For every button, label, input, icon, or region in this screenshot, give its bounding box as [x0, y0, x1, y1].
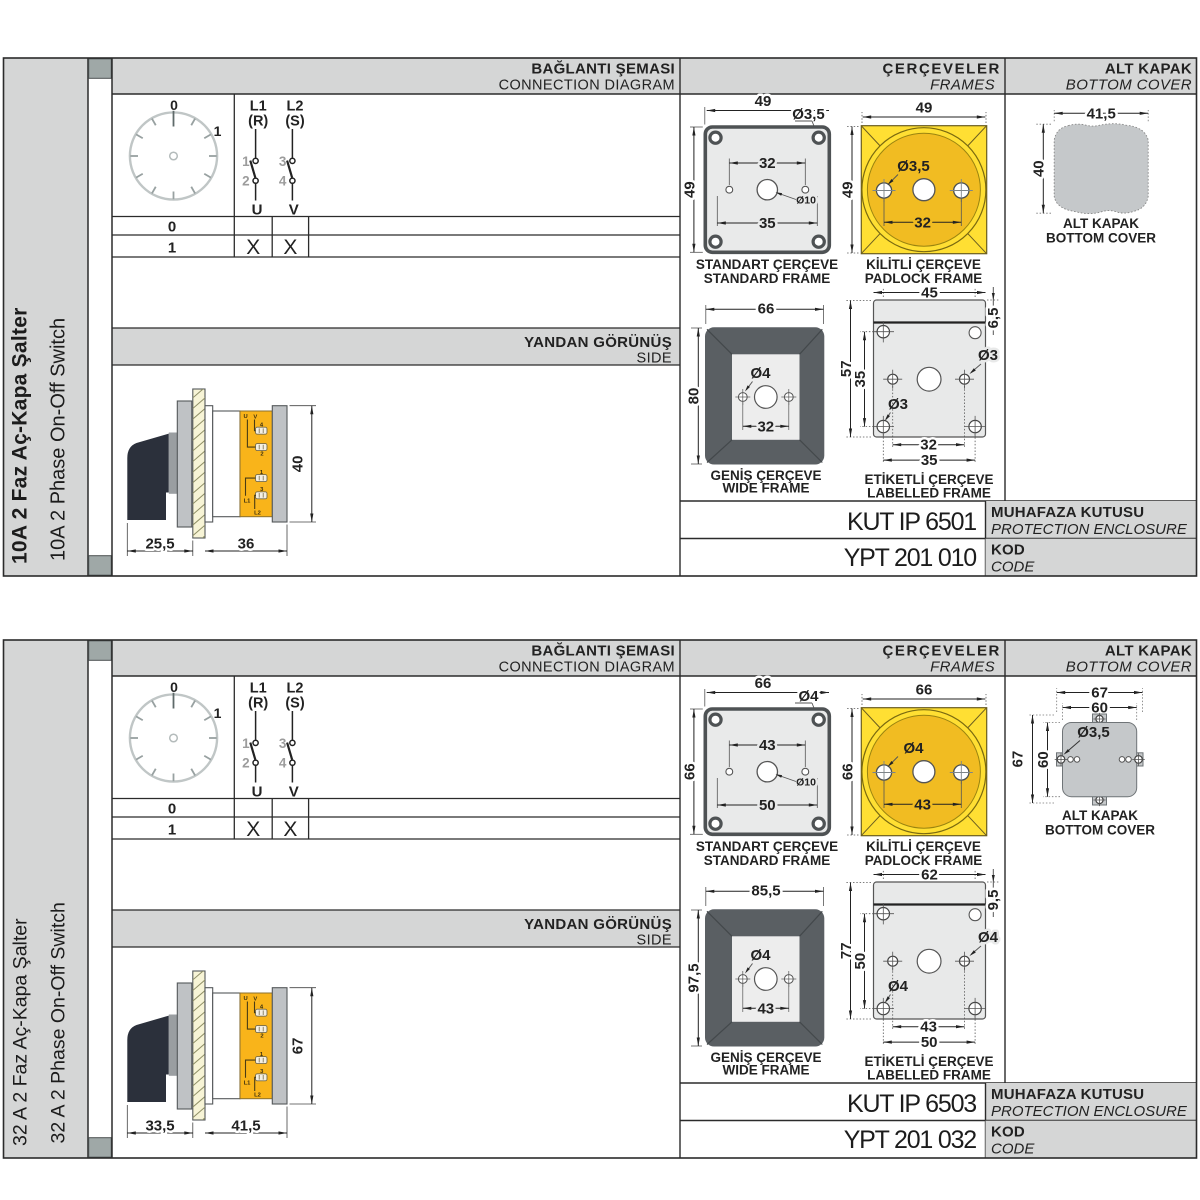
- svg-text:L2: L2: [254, 511, 261, 517]
- svg-text:66: 66: [755, 675, 772, 692]
- svg-text:YANDAN GÖRÜNÜŞ: YANDAN GÖRÜNÜŞ: [524, 334, 672, 351]
- svg-text:32: 32: [757, 418, 774, 435]
- svg-text:Ø3,5: Ø3,5: [1077, 724, 1110, 741]
- svg-text:KİLİTLİ ÇERÇEVE: KİLİTLİ ÇERÇEVE: [866, 257, 981, 272]
- svg-text:0: 0: [170, 679, 178, 695]
- svg-text:1: 1: [214, 123, 222, 139]
- svg-text:Ø4: Ø4: [978, 929, 999, 946]
- svg-text:YPT 201 032: YPT 201 032: [844, 1126, 977, 1154]
- svg-text:66: 66: [916, 682, 933, 699]
- svg-text:SIDE: SIDE: [637, 351, 672, 367]
- svg-text:35: 35: [759, 215, 776, 232]
- svg-text:40: 40: [290, 456, 307, 473]
- svg-text:1: 1: [242, 154, 250, 169]
- svg-text:32: 32: [914, 214, 931, 231]
- svg-text:L1: L1: [250, 681, 267, 697]
- svg-text:9,5: 9,5: [985, 890, 1002, 911]
- svg-text:0: 0: [168, 801, 176, 818]
- svg-text:L1: L1: [244, 499, 252, 505]
- svg-text:32: 32: [759, 155, 776, 172]
- svg-text:35: 35: [852, 371, 869, 388]
- svg-text:Ø3,5: Ø3,5: [897, 158, 930, 175]
- svg-text:STANDART ÇERÇEVE: STANDART ÇERÇEVE: [696, 839, 838, 854]
- svg-text:85,5: 85,5: [751, 883, 780, 900]
- svg-text:4: 4: [279, 755, 287, 770]
- svg-text:L1: L1: [250, 99, 267, 115]
- svg-text:MUHAFAZA KUTUSU: MUHAFAZA KUTUSU: [991, 1086, 1144, 1103]
- svg-text:50: 50: [921, 1034, 938, 1051]
- svg-text:66: 66: [758, 301, 775, 318]
- svg-text:STANDARD FRAME: STANDARD FRAME: [704, 853, 831, 868]
- svg-text:Ø4: Ø4: [888, 978, 909, 995]
- svg-text:KOD: KOD: [991, 542, 1025, 559]
- svg-text:Ø3,5: Ø3,5: [792, 106, 825, 123]
- svg-text:Ø10: Ø10: [796, 777, 816, 789]
- svg-text:10A 2 Faz Aç-Kapa Şalter: 10A 2 Faz Aç-Kapa Şalter: [9, 307, 32, 564]
- svg-text:62: 62: [921, 867, 938, 884]
- svg-text:U: U: [244, 996, 248, 1002]
- svg-text:Ø3: Ø3: [978, 347, 998, 364]
- svg-text:FRAMES: FRAMES: [930, 659, 995, 676]
- svg-text:40: 40: [1031, 160, 1048, 177]
- svg-text:KİLİTLİ ÇERÇEVE: KİLİTLİ ÇERÇEVE: [866, 839, 981, 854]
- svg-text:80: 80: [686, 388, 703, 405]
- svg-text:2: 2: [242, 173, 250, 188]
- svg-text:X: X: [246, 236, 260, 259]
- svg-text:WIDE FRAME: WIDE FRAME: [723, 481, 810, 496]
- svg-text:BAĞLANTI ŞEMASI: BAĞLANTI ŞEMASI: [531, 642, 675, 660]
- svg-text:32 A 2 Faz Aç-Kapa Şalter: 32 A 2 Faz Aç-Kapa Şalter: [10, 918, 32, 1146]
- svg-text:66: 66: [681, 763, 698, 780]
- svg-text:KUT IP 6503: KUT IP 6503: [847, 1090, 976, 1118]
- svg-text:BOTTOM COVER: BOTTOM COVER: [1046, 231, 1156, 246]
- svg-text:(S): (S): [285, 696, 305, 712]
- svg-text:CONNECTION DIAGRAM: CONNECTION DIAGRAM: [499, 660, 675, 676]
- svg-text:49: 49: [755, 93, 772, 110]
- svg-text:43: 43: [914, 796, 931, 813]
- svg-text:43: 43: [759, 737, 776, 754]
- svg-text:ÇERÇEVELER: ÇERÇEVELER: [882, 61, 1001, 78]
- svg-text:(S): (S): [285, 114, 305, 130]
- svg-text:66: 66: [839, 763, 856, 780]
- svg-text:49: 49: [839, 181, 856, 198]
- svg-text:L2: L2: [287, 99, 304, 115]
- svg-text:BOTTOM COVER: BOTTOM COVER: [1066, 77, 1192, 94]
- svg-text:Ø4: Ø4: [750, 365, 771, 382]
- svg-text:60: 60: [1035, 751, 1052, 768]
- svg-text:X: X: [283, 818, 297, 841]
- svg-text:49: 49: [681, 181, 698, 198]
- svg-text:1: 1: [214, 705, 222, 721]
- svg-text:L2: L2: [287, 681, 304, 697]
- svg-text:LABELLED FRAME: LABELLED FRAME: [867, 1068, 991, 1083]
- svg-text:1: 1: [242, 736, 250, 751]
- svg-text:U: U: [244, 414, 248, 420]
- svg-text:32 A 2 Phase On-Off Switch: 32 A 2 Phase On-Off Switch: [48, 902, 70, 1143]
- svg-text:43: 43: [757, 1000, 774, 1017]
- svg-text:STANDART ÇERÇEVE: STANDART ÇERÇEVE: [696, 257, 838, 272]
- svg-text:2: 2: [260, 452, 263, 458]
- svg-text:(R): (R): [248, 114, 268, 130]
- svg-text:67: 67: [290, 1038, 307, 1055]
- svg-text:1: 1: [168, 240, 176, 257]
- svg-text:WIDE FRAME: WIDE FRAME: [723, 1063, 810, 1078]
- svg-text:PROTECTION ENCLOSURE: PROTECTION ENCLOSURE: [991, 1103, 1188, 1120]
- svg-text:41,5: 41,5: [1087, 105, 1116, 122]
- svg-text:50: 50: [759, 797, 776, 814]
- svg-text:LABELLED FRAME: LABELLED FRAME: [867, 486, 991, 501]
- svg-text:BOTTOM COVER: BOTTOM COVER: [1045, 823, 1155, 838]
- svg-text:V: V: [253, 415, 257, 421]
- svg-text:CODE: CODE: [991, 1141, 1035, 1158]
- svg-text:1: 1: [168, 822, 176, 839]
- svg-text:Ø4: Ø4: [750, 947, 771, 964]
- svg-text:YPT 201 010: YPT 201 010: [844, 544, 977, 572]
- svg-text:3: 3: [279, 736, 287, 751]
- svg-text:97,5: 97,5: [686, 963, 703, 992]
- svg-text:Ø3: Ø3: [888, 396, 908, 413]
- svg-text:ALT KAPAK: ALT KAPAK: [1105, 61, 1192, 78]
- svg-text:ALT KAPAK: ALT KAPAK: [1063, 216, 1139, 231]
- svg-text:(R): (R): [248, 696, 268, 712]
- svg-text:10A 2 Phase On-Off Switch: 10A 2 Phase On-Off Switch: [48, 318, 70, 561]
- svg-text:SIDE: SIDE: [637, 933, 672, 949]
- svg-text:CONNECTION DIAGRAM: CONNECTION DIAGRAM: [499, 78, 675, 94]
- svg-text:36: 36: [238, 536, 255, 553]
- svg-text:KUT IP 6501: KUT IP 6501: [847, 508, 976, 536]
- svg-text:KOD: KOD: [991, 1124, 1025, 1141]
- svg-text:YANDAN GÖRÜNÜŞ: YANDAN GÖRÜNÜŞ: [524, 916, 672, 933]
- svg-text:X: X: [283, 236, 297, 259]
- svg-text:2: 2: [242, 755, 250, 770]
- svg-text:33,5: 33,5: [145, 1118, 174, 1135]
- svg-text:45: 45: [921, 285, 938, 302]
- svg-text:L1: L1: [244, 1081, 252, 1087]
- svg-text:2: 2: [260, 1034, 263, 1040]
- svg-text:BOTTOM COVER: BOTTOM COVER: [1066, 659, 1192, 676]
- svg-text:PROTECTION ENCLOSURE: PROTECTION ENCLOSURE: [991, 521, 1188, 538]
- svg-text:Ø10: Ø10: [796, 195, 816, 207]
- svg-text:50: 50: [852, 953, 869, 970]
- svg-text:6,5: 6,5: [985, 308, 1002, 329]
- svg-text:3: 3: [279, 154, 287, 169]
- svg-text:FRAMES: FRAMES: [930, 77, 995, 94]
- svg-text:STANDARD FRAME: STANDARD FRAME: [704, 271, 831, 286]
- svg-text:0: 0: [170, 97, 178, 113]
- svg-text:67: 67: [1010, 751, 1027, 768]
- svg-text:L2: L2: [254, 1093, 261, 1099]
- svg-text:ALT KAPAK: ALT KAPAK: [1105, 643, 1192, 660]
- svg-text:41,5: 41,5: [231, 1118, 260, 1135]
- svg-text:ÇERÇEVELER: ÇERÇEVELER: [882, 643, 1001, 660]
- svg-text:X: X: [246, 818, 260, 841]
- svg-text:CODE: CODE: [991, 559, 1035, 576]
- svg-text:V: V: [253, 997, 257, 1003]
- svg-text:25,5: 25,5: [145, 536, 174, 553]
- svg-text:Ø4: Ø4: [798, 688, 819, 705]
- svg-text:49: 49: [916, 100, 933, 117]
- svg-text:0: 0: [168, 219, 176, 236]
- svg-text:ALT KAPAK: ALT KAPAK: [1062, 808, 1138, 823]
- svg-text:4: 4: [279, 173, 287, 188]
- svg-text:MUHAFAZA KUTUSU: MUHAFAZA KUTUSU: [991, 504, 1144, 521]
- svg-text:Ø4: Ø4: [903, 740, 924, 757]
- svg-text:35: 35: [921, 452, 938, 469]
- svg-text:BAĞLANTI ŞEMASI: BAĞLANTI ŞEMASI: [531, 60, 675, 78]
